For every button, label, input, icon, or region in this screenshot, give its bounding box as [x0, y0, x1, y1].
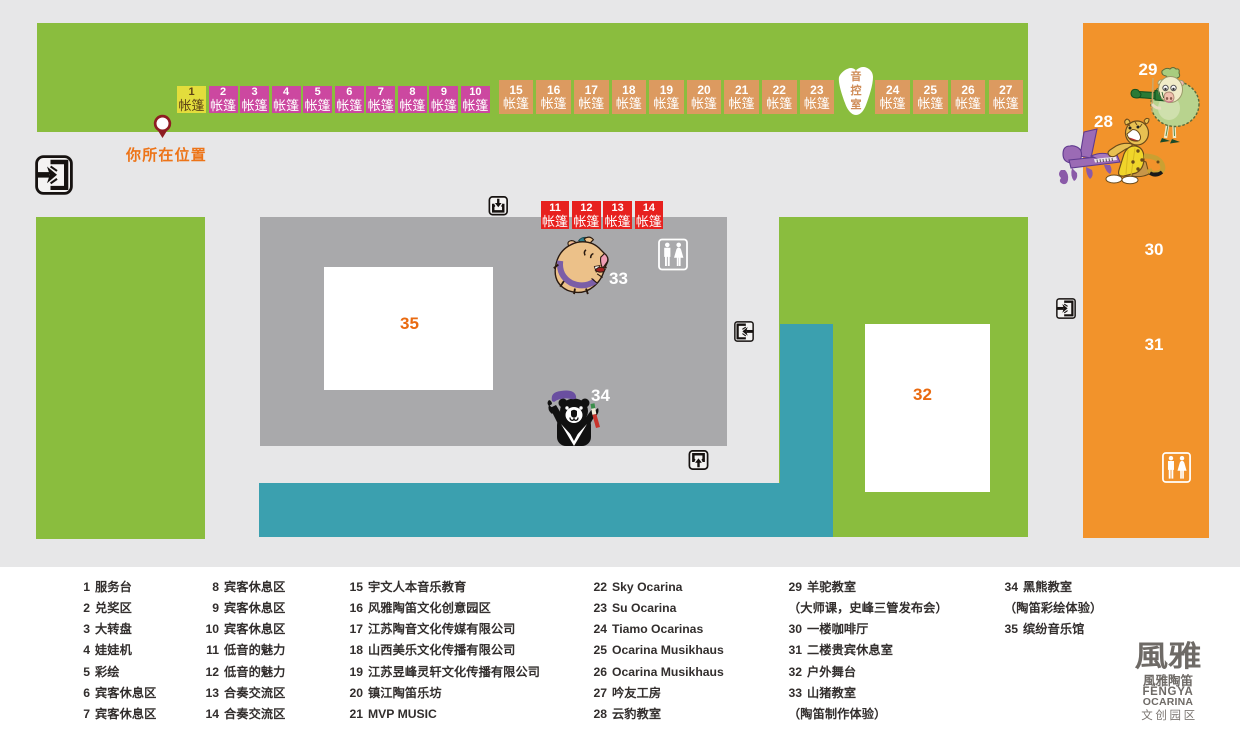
- svg-text:音: 音: [851, 69, 862, 83]
- svg-text:室: 室: [851, 97, 862, 111]
- svg-text:控: 控: [851, 83, 862, 97]
